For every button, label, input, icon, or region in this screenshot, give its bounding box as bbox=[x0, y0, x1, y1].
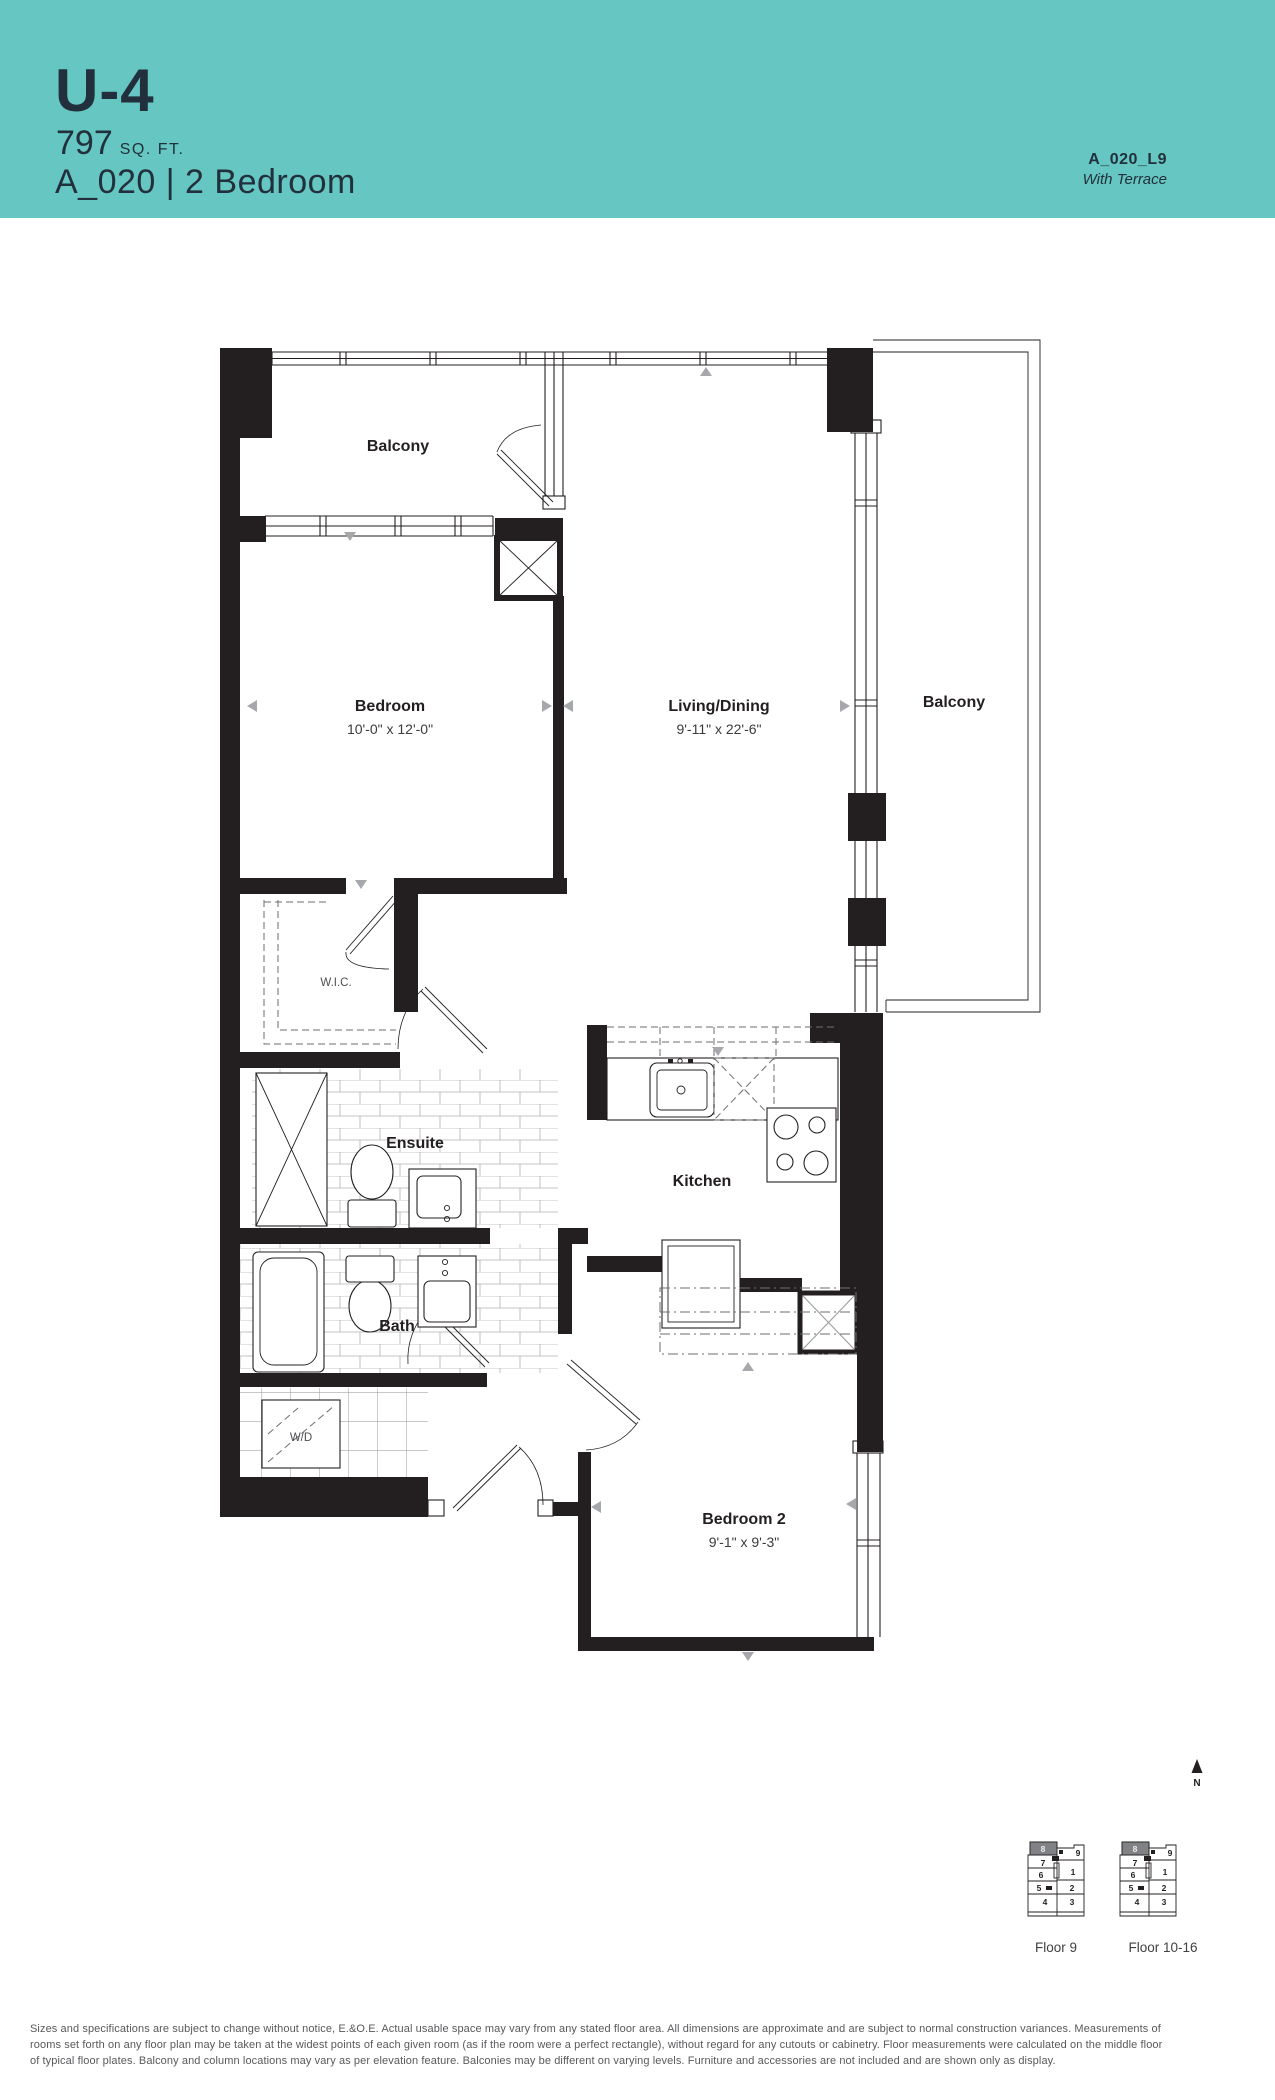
floorplan-sheet: U-4 797SQ. FT. A_020 | 2 Bedroom A_020_L… bbox=[0, 0, 1275, 2100]
keyplan1-label: Floor 9 bbox=[1035, 1940, 1077, 1955]
keyplan1-unit: 4 bbox=[1043, 1897, 1048, 1907]
disclaimer-line: rooms set forth on any floor plan may be… bbox=[30, 2037, 1250, 2053]
keyplan1-unit: 5 bbox=[1037, 1883, 1042, 1893]
keyplan2-label: Floor 10-16 bbox=[1128, 1940, 1197, 1955]
keyplan2-unit: 1 bbox=[1163, 1867, 1168, 1877]
ensuite-label: Ensuite bbox=[386, 1135, 444, 1152]
bath-label: Bath bbox=[379, 1318, 415, 1335]
balcony-top-label: Balcony bbox=[367, 438, 429, 455]
keyplan2-unit: 6 bbox=[1131, 1870, 1136, 1880]
keyplan1-unit: 2 bbox=[1070, 1883, 1075, 1893]
balcony-right-label: Balcony bbox=[923, 694, 985, 711]
living-dining-label: Living/Dining bbox=[668, 698, 769, 715]
north-label: N bbox=[1193, 1778, 1200, 1789]
keyplan1-unit: 7 bbox=[1041, 1858, 1046, 1868]
keyplan1-unit: 9 bbox=[1076, 1848, 1081, 1858]
keyplan1-unit: 3 bbox=[1070, 1897, 1075, 1907]
kitchen-label: Kitchen bbox=[673, 1173, 732, 1190]
bedroom-label: Bedroom bbox=[355, 698, 425, 715]
bedroom-dims: 10'-0" x 12'-0" bbox=[347, 721, 433, 737]
shafts bbox=[497, 538, 857, 1352]
keyplan2-unit: 5 bbox=[1129, 1883, 1134, 1893]
terrace-outline bbox=[873, 340, 1040, 1012]
floorplan-drawing: Balcony Bedroom 10'-0" x 12'-0" Living/D… bbox=[0, 0, 1275, 2100]
keyplan2-unit: 3 bbox=[1162, 1897, 1167, 1907]
north-arrow-icon: N bbox=[1192, 1759, 1203, 1789]
wic-closet bbox=[264, 900, 396, 1044]
keyplan2-unit: 9 bbox=[1168, 1848, 1173, 1858]
keyplan2-unit: 7 bbox=[1133, 1858, 1138, 1868]
wd-label: W/D bbox=[290, 1432, 312, 1444]
disclaimer-line: Sizes and specifications are subject to … bbox=[30, 2021, 1250, 2037]
keyplan2-unit: 2 bbox=[1162, 1883, 1167, 1893]
keyplan1-unit: 1 bbox=[1071, 1867, 1076, 1877]
wic-label: W.I.C. bbox=[320, 977, 351, 989]
disclaimer-line: of typical floor plates. Balcony and col… bbox=[30, 2053, 1250, 2069]
disclaimer: Sizes and specifications are subject to … bbox=[30, 2021, 1250, 2069]
keyplan1-unit-highlight: 8 bbox=[1041, 1844, 1046, 1854]
keyplan2-unit: 4 bbox=[1135, 1897, 1140, 1907]
bedroom2-dims: 9'-1" x 9'-3" bbox=[709, 1534, 780, 1550]
keyplan-floor9: 8 9 7 6 1 5 2 4 3 bbox=[1028, 1842, 1084, 1916]
living-dining-dims: 9'-11" x 22'-6" bbox=[676, 721, 761, 737]
keyplan-floor10-16: 8 9 7 6 1 5 2 4 3 bbox=[1120, 1842, 1176, 1916]
bedroom2-label: Bedroom 2 bbox=[702, 1511, 786, 1528]
keyplan2-unit-highlight: 8 bbox=[1133, 1844, 1138, 1854]
keyplan1-unit: 6 bbox=[1039, 1870, 1044, 1880]
